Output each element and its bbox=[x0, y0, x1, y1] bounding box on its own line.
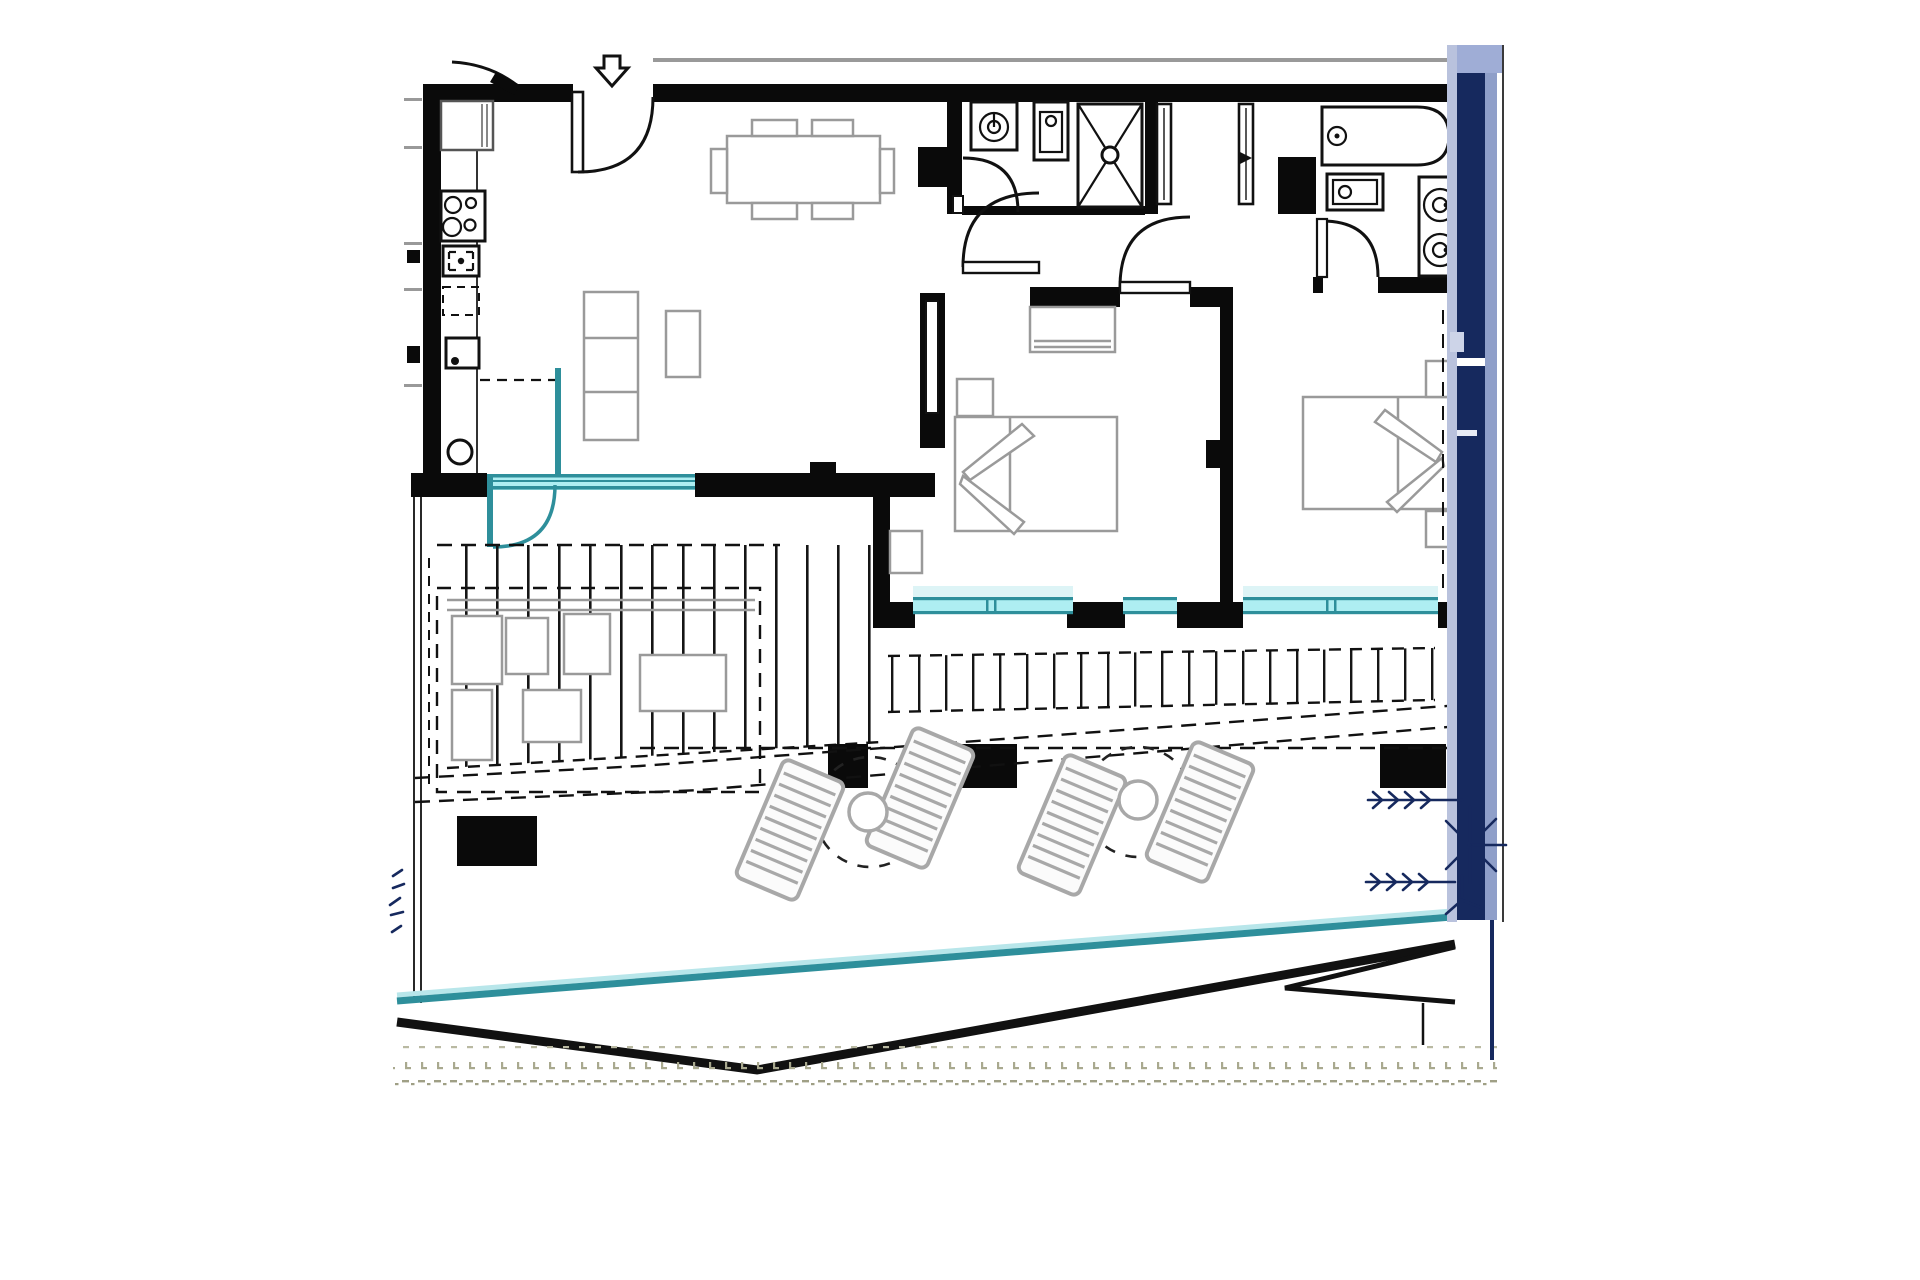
fridge bbox=[441, 101, 493, 150]
prep-sink bbox=[446, 338, 479, 368]
bedroom-1-door-leaf bbox=[963, 262, 1039, 273]
toilet bbox=[971, 102, 1017, 150]
side-table bbox=[1119, 781, 1157, 819]
wardrobe bbox=[1030, 307, 1115, 352]
planter bbox=[457, 816, 537, 866]
side-table bbox=[849, 793, 887, 831]
bed bbox=[955, 417, 1117, 534]
washing-machine bbox=[448, 440, 472, 464]
chair bbox=[752, 203, 797, 219]
dining-table bbox=[727, 136, 880, 203]
window bbox=[1243, 586, 1438, 614]
chair bbox=[711, 149, 727, 193]
bedroom-2-door-leaf bbox=[1120, 282, 1190, 293]
pocket-door bbox=[926, 301, 938, 413]
bench bbox=[890, 531, 922, 573]
bathtub bbox=[1322, 107, 1449, 165]
chair bbox=[812, 120, 853, 136]
floor-plan-canvas bbox=[0, 0, 1920, 1280]
entry-door-leaf bbox=[572, 92, 583, 172]
shower bbox=[1078, 104, 1142, 207]
stove bbox=[441, 191, 485, 241]
washbasin bbox=[1327, 174, 1383, 210]
window bbox=[1123, 597, 1177, 614]
chair bbox=[880, 149, 894, 193]
chair bbox=[752, 120, 797, 136]
glass-partition bbox=[555, 368, 561, 477]
dining-area bbox=[711, 120, 894, 219]
sliding-glass-wall bbox=[487, 474, 695, 490]
nightstand bbox=[957, 379, 993, 416]
coffee-table bbox=[523, 690, 581, 742]
planter bbox=[1380, 744, 1446, 788]
bed bbox=[1303, 397, 1450, 512]
armchair bbox=[666, 311, 700, 377]
chair bbox=[812, 203, 853, 219]
door-leaf bbox=[1317, 219, 1327, 277]
paving-texture bbox=[393, 1042, 1497, 1094]
washbasin bbox=[1034, 102, 1068, 160]
window bbox=[913, 586, 1073, 614]
shelving-unit bbox=[584, 292, 638, 440]
apartment-floor-plan bbox=[0, 0, 1920, 1280]
kitchen-sink bbox=[443, 246, 479, 276]
